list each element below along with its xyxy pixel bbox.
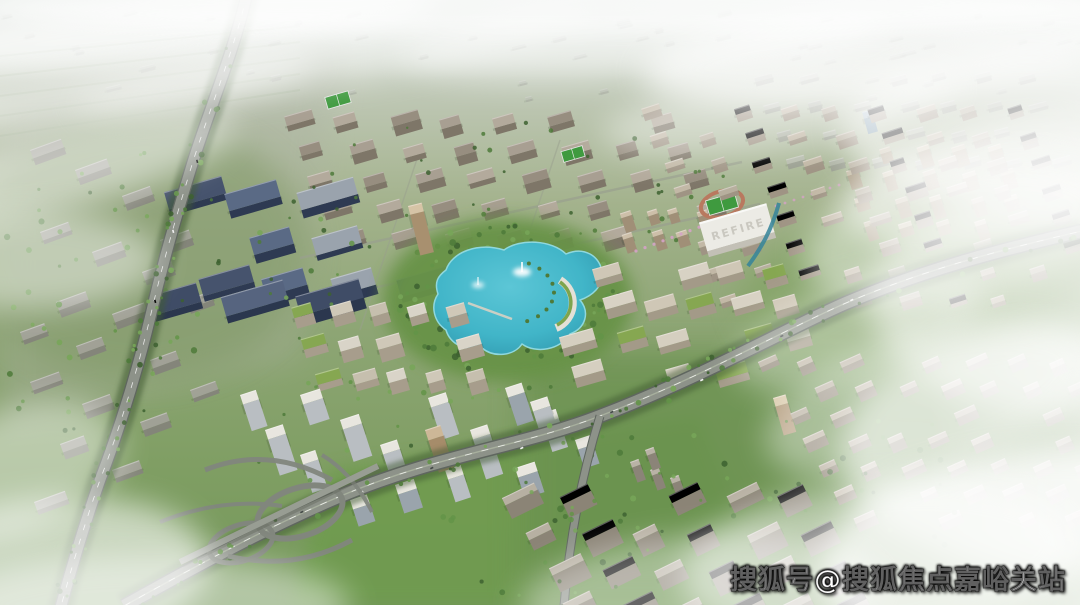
watermark-text: 搜狐号@搜狐焦点嘉峪关站	[730, 565, 1066, 596]
watermark: 搜狐号@搜狐焦点嘉峪关站	[730, 558, 1066, 597]
aerial-city-render: REFIRE 搜狐号@搜狐焦点嘉峪关站	[0, 0, 1080, 605]
aerial-city-rendering-canvas: REFIRE	[0, 0, 1080, 605]
